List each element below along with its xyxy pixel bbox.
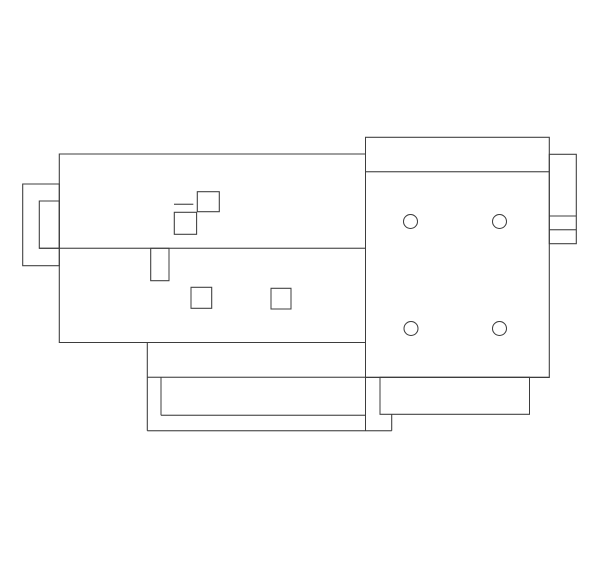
- left-mount-bracket-outer: [23, 184, 60, 266]
- component-square-mid: [174, 212, 196, 234]
- lower-square-right: [271, 288, 291, 309]
- right-end-panel: [366, 137, 550, 377]
- bolt-hole-bottom-left: [404, 322, 418, 336]
- divider-notch-rect: [151, 248, 169, 280]
- base-plate-right-rect: [380, 377, 530, 414]
- left-mount-bracket-inner: [39, 201, 59, 248]
- lower-square-left: [191, 287, 212, 308]
- cad-drawing: [0, 0, 600, 569]
- component-square-upper: [197, 192, 219, 212]
- right-side-flange: [549, 154, 576, 243]
- bolt-hole-top-right: [493, 215, 507, 229]
- drawing-canvas: [0, 0, 600, 569]
- bolt-hole-top-left: [404, 215, 418, 229]
- bolt-hole-bottom-right: [493, 322, 507, 336]
